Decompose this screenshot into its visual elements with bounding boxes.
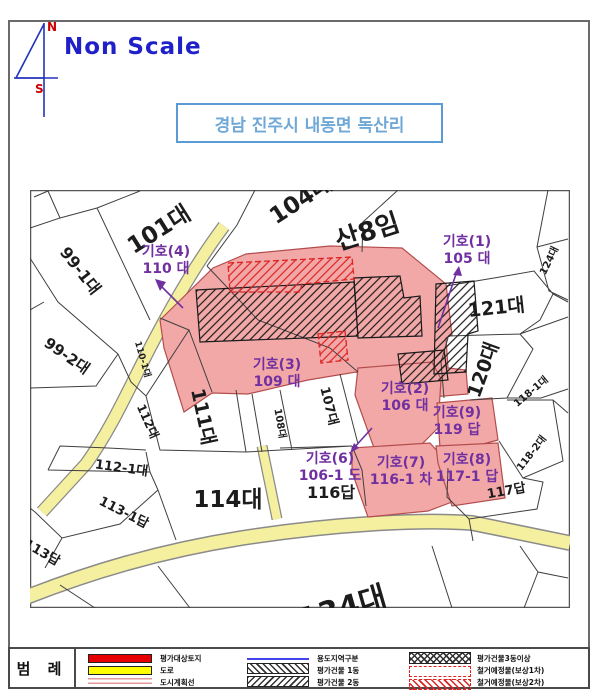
parcel-marker-label: 기호(6) <box>306 451 354 467</box>
location-title: 경남 진주시 내동면 독산리 <box>215 111 405 136</box>
legend: 범 례 평가대상토지 도로 도시계획선 용도지역구분 평가건물 1동 평가건물 … <box>8 647 590 689</box>
legend-swatch-road <box>88 666 152 675</box>
scale-note: Non Scale <box>64 34 202 60</box>
parcel-marker-label: 기호(3) <box>253 357 301 373</box>
appraisal-map-page: N S Non Scale 경남 진주시 내동면 독산리 <box>0 0 600 700</box>
parcel-marker-label: 기호(2) <box>381 381 429 397</box>
parcel-label: 114대 <box>193 487 262 513</box>
legend-swatch-city-plan <box>88 678 152 687</box>
compass-south-label: S <box>35 82 44 96</box>
parcel-marker-label: 116-1 차 <box>370 472 433 488</box>
parcel-marker-label: 109 대 <box>254 374 301 390</box>
legend-swatch-demolition-2 <box>409 679 471 690</box>
legend-title: 범 례 <box>10 649 76 687</box>
legend-label: 철거예정물(보상1차) <box>477 667 544 675</box>
legend-label: 평가건물 2동 <box>317 679 359 687</box>
legend-label: 철거예정물(보상2차) <box>477 679 544 687</box>
parcel-marker-label: 119 답 <box>434 421 481 438</box>
parcel-marker-label: 106-1 도 <box>299 468 362 484</box>
legend-label: 평가대상토지 <box>160 655 201 663</box>
parcel-marker-label: 기호(8) <box>443 452 491 468</box>
legend-swatch-target-land <box>88 654 152 663</box>
cadastral-map: 101대104대산8임124대121대120대118-1대118-2대117답9… <box>30 190 570 608</box>
legend-swatch-demolition-1 <box>409 666 471 677</box>
legend-label: 도로 <box>160 667 174 675</box>
parcel-marker-label: 117-1 답 <box>436 468 499 485</box>
legend-label: 평가건물 1동 <box>317 667 359 675</box>
parcel-marker-label: 105 대 <box>444 251 491 267</box>
legend-label: 용도지역구분 <box>317 655 358 663</box>
parcel-marker-label: 106 대 <box>382 398 429 414</box>
parcel-marker-label: 기호(9) <box>433 405 481 421</box>
legend-label: 평가건물3동이상 <box>477 655 531 663</box>
parcel-marker-label: 110 대 <box>143 261 190 277</box>
legend-swatch-use-district <box>247 658 309 660</box>
compass-icon: N S <box>0 0 140 140</box>
compass-north-label: N <box>47 20 57 34</box>
parcel-marker-label: 기호(1) <box>443 234 491 250</box>
parcel-marker-label: 기호(7) <box>377 455 425 471</box>
legend-swatch-building-3plus <box>409 652 471 664</box>
legend-label: 도시계획선 <box>160 679 195 687</box>
legend-swatch-building-1 <box>247 663 309 674</box>
parcel-label: 116답 <box>307 483 355 502</box>
parcel-marker-label: 기호(4) <box>142 244 190 260</box>
location-title-box: 경남 진주시 내동면 독산리 <box>176 103 443 143</box>
legend-swatch-building-2 <box>247 676 309 687</box>
